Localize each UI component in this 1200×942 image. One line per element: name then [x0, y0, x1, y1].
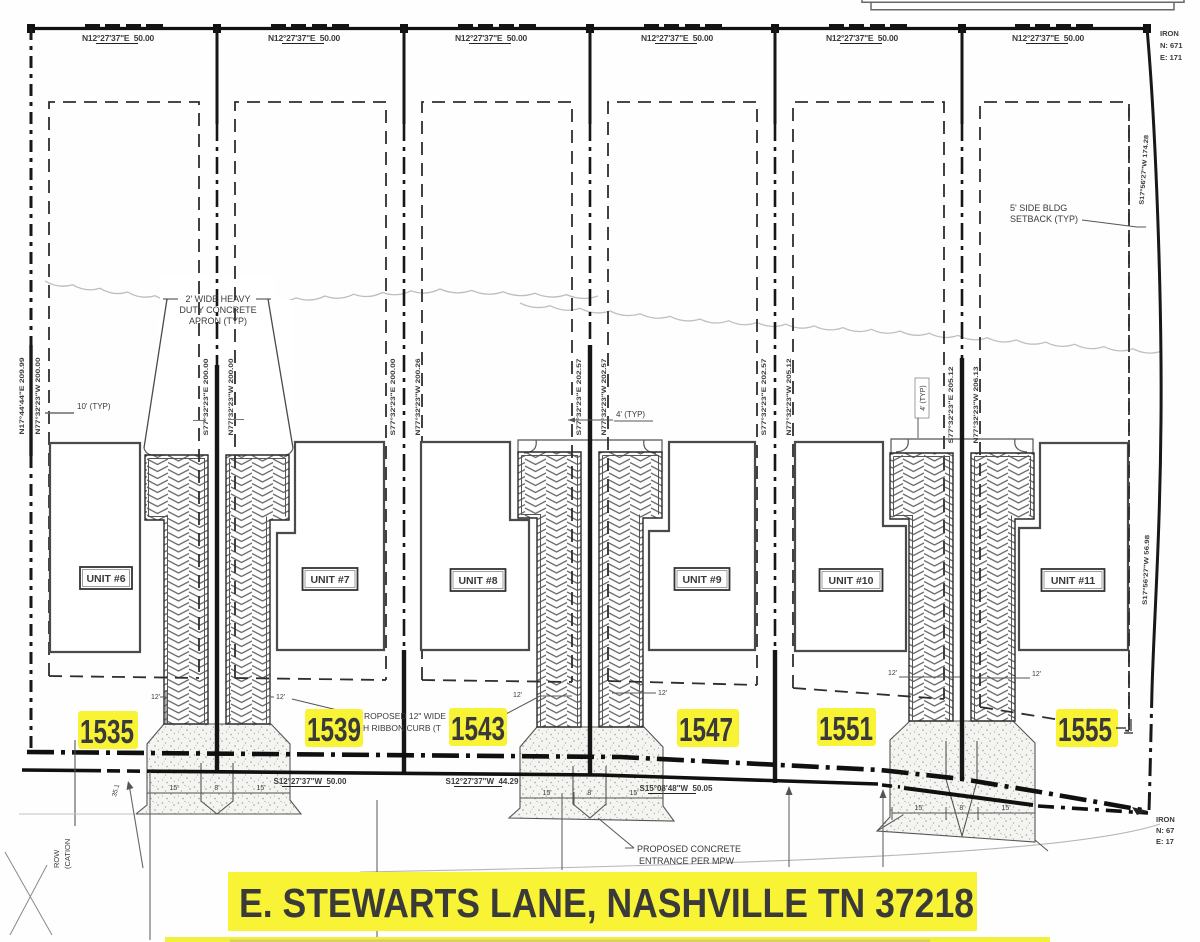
svg-text:S12°27'37"W 44.29: S12°27'37"W 44.29 — [446, 777, 519, 786]
svg-text:N: 67: N: 67 — [1156, 826, 1174, 835]
svg-text:12': 12' — [888, 670, 897, 677]
svg-text:ENTRANCE PER MPW: ENTRANCE PER MPW — [639, 856, 735, 866]
svg-text:1555: 1555 — [1058, 711, 1112, 748]
svg-text:15': 15' — [542, 790, 551, 797]
svg-text:UNIT #11: UNIT #11 — [1051, 575, 1096, 587]
svg-text:S77°32'23"E 202.57: S77°32'23"E 202.57 — [760, 358, 768, 436]
svg-text:15': 15' — [914, 805, 923, 812]
svg-text:12': 12' — [513, 692, 522, 699]
svg-text:N77°32'23"W 202.57: N77°32'23"W 202.57 — [600, 358, 608, 436]
svg-text:S77°32'23"E 205.12: S77°32'23"E 205.12 — [947, 366, 955, 444]
svg-text:N12°27'37"E 50.00: N12°27'37"E 50.00 — [1012, 33, 1084, 43]
svg-text:1543: 1543 — [451, 710, 505, 747]
svg-text:E. STEWARTS LANE, NASHVILLE TN: E. STEWARTS LANE, NASHVILLE TN 37218 — [239, 880, 974, 926]
svg-text:N12°27'37"E 50.00: N12°27'37"E 50.00 — [268, 33, 340, 43]
svg-text:2' WIDE HEAVY: 2' WIDE HEAVY — [185, 294, 250, 304]
svg-text:N: 671: N: 671 — [1160, 41, 1183, 50]
svg-text:UNIT #7: UNIT #7 — [310, 574, 349, 586]
svg-text:UNIT #9: UNIT #9 — [682, 574, 721, 586]
svg-text:S77°32'23"E 200.00: S77°32'23"E 200.00 — [202, 358, 210, 436]
svg-text:1547: 1547 — [679, 711, 733, 748]
svg-text:N12°27'37"E 50.00: N12°27'37"E 50.00 — [826, 33, 898, 43]
svg-text:N77°32'23"W 200.00: N77°32'23"W 200.00 — [227, 358, 235, 436]
svg-text:15': 15' — [169, 785, 178, 792]
svg-text:ROPOSED 12" WIDE: ROPOSED 12" WIDE — [364, 711, 446, 721]
svg-text:5' SIDE BLDG: 5' SIDE BLDG — [1010, 203, 1067, 213]
svg-text:IRON: IRON — [1156, 815, 1175, 824]
svg-text:UNIT #6: UNIT #6 — [86, 573, 125, 585]
svg-text:12': 12' — [276, 694, 285, 701]
svg-text:N77°32'23"W 200.26: N77°32'23"W 200.26 — [414, 358, 422, 436]
svg-text:10' (TYP): 10' (TYP) — [77, 402, 111, 411]
svg-text:IRON: IRON — [1160, 29, 1179, 38]
svg-text:15': 15' — [629, 790, 638, 797]
svg-text:1551: 1551 — [819, 710, 873, 747]
svg-text:DUTY CONCRETE: DUTY CONCRETE — [179, 305, 256, 315]
svg-text:N12°27'37"E 50.00: N12°27'37"E 50.00 — [455, 33, 527, 43]
svg-text:12': 12' — [151, 694, 160, 701]
svg-text:APRON (TYP): APRON (TYP) — [189, 316, 247, 326]
svg-text:N17°44'44"E 209.99: N17°44'44"E 209.99 — [18, 357, 26, 435]
svg-text:S12°27'37"W 50.00: S12°27'37"W 50.00 — [274, 777, 347, 786]
svg-text:8': 8' — [587, 790, 592, 797]
svg-text:8': 8' — [959, 805, 964, 812]
svg-text:15': 15' — [256, 785, 265, 792]
svg-text:12': 12' — [1032, 671, 1041, 678]
svg-text:N77°32'23"W 200.00: N77°32'23"W 200.00 — [34, 357, 42, 435]
svg-text:8': 8' — [214, 785, 219, 792]
svg-text:4' (TYP): 4' (TYP) — [616, 410, 645, 419]
svg-text:UNIT #8: UNIT #8 — [458, 575, 497, 587]
svg-text:N77°32'23"W 206.13: N77°32'23"W 206.13 — [972, 366, 980, 444]
svg-text:(CATION: (CATION — [63, 839, 72, 869]
svg-text:N12°27'37"E 50.00: N12°27'37"E 50.00 — [641, 33, 713, 43]
svg-text:E: 171: E: 171 — [1160, 53, 1182, 62]
svg-text:SETBACK (TYP): SETBACK (TYP) — [1010, 214, 1078, 224]
svg-text:1535: 1535 — [80, 713, 134, 750]
svg-text:4' (TYP): 4' (TYP) — [920, 385, 927, 410]
svg-text:UNIT #10: UNIT #10 — [829, 575, 874, 587]
svg-text:1539: 1539 — [307, 711, 361, 748]
svg-text:N12°27'37"E 50.00: N12°27'37"E 50.00 — [82, 33, 154, 43]
svg-text:S77°32'23"E 202.57: S77°32'23"E 202.57 — [575, 358, 583, 436]
svg-text:S15°08'48"W 50.05: S15°08'48"W 50.05 — [640, 784, 713, 793]
svg-text:15': 15' — [1001, 805, 1010, 812]
svg-text:S77°32'23"E 200.00: S77°32'23"E 200.00 — [389, 358, 397, 436]
svg-text:PROPOSED CONCRETE: PROPOSED CONCRETE — [637, 844, 741, 854]
svg-text:E: 17: E: 17 — [1156, 837, 1174, 846]
svg-text:H RIBBON CURB (T: H RIBBON CURB (T — [363, 723, 441, 733]
svg-text:N77°32'23"W 205.12: N77°32'23"W 205.12 — [785, 358, 793, 436]
svg-text:ROW: ROW — [52, 849, 61, 868]
svg-text:12': 12' — [658, 690, 667, 697]
